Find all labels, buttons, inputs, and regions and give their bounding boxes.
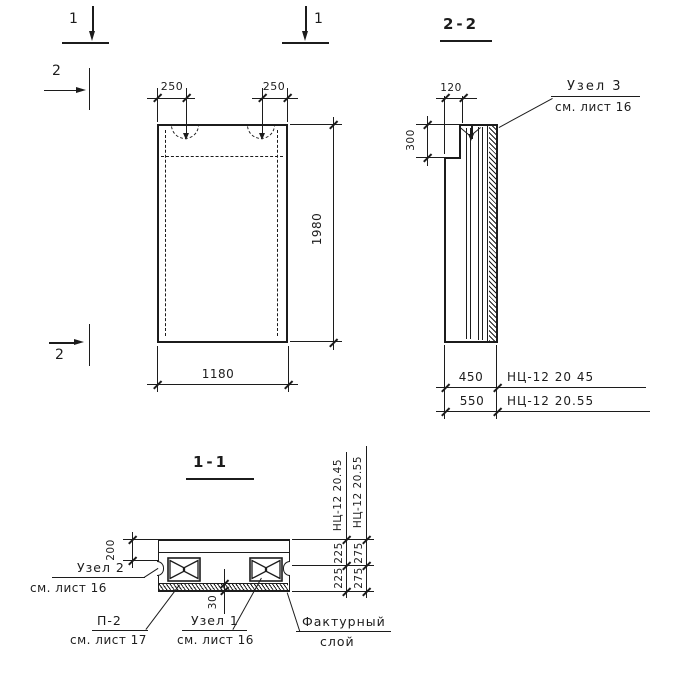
loop-arrow-icon: [183, 133, 189, 140]
callout-underline: [551, 96, 640, 97]
dimension-line: [333, 117, 334, 350]
channel-insert-icon: [249, 557, 283, 582]
dim-30: 30: [207, 591, 219, 613]
cut-label-2-top: 2: [52, 63, 61, 79]
flange-inner-line: [158, 552, 290, 553]
dim-275-top: 275: [353, 540, 365, 566]
callout-node3-ref: см. лист 16: [555, 100, 632, 114]
hidden-edge-line: [161, 156, 283, 157]
title-underline: [440, 40, 492, 42]
extension-line: [287, 88, 288, 122]
extension-line: [186, 88, 187, 124]
dimension-line: [436, 411, 650, 412]
cut-mark-line: [89, 68, 91, 110]
dim-225-bottom: 225: [333, 565, 345, 591]
extension-line: [416, 124, 459, 125]
callout-facing-line2: слой: [320, 634, 355, 649]
dim-250-right: 250: [259, 80, 289, 93]
dim-275-bottom: 275: [353, 565, 365, 591]
cut-label-2-bottom: 2: [55, 347, 64, 363]
callout-underline: [52, 577, 145, 578]
groove-notch: [283, 561, 290, 576]
leader-line: [286, 592, 300, 631]
cut-mark-line: [92, 6, 94, 33]
dimension-line: [346, 452, 347, 598]
title-underline: [186, 478, 254, 480]
callout-underline: [92, 630, 148, 631]
section-edge: [444, 157, 446, 343]
layer-line: [470, 128, 471, 339]
panel-mark-45: НЦ-12 20 45: [507, 370, 594, 384]
channel-insert-icon: [167, 557, 201, 582]
panel-mark-55: НЦ-12 20.55: [507, 394, 594, 408]
cut-arrow-down-icon: [302, 31, 308, 41]
dimension-line: [147, 384, 298, 385]
drawing-canvas: 1 1 2 2 250 250 1980 1180 2-2: [0, 0, 700, 700]
dim-450: 450: [451, 370, 491, 384]
section-edge: [158, 539, 160, 563]
callout-node2-title: Узел 2: [77, 560, 125, 575]
cut-label-1-right: 1: [314, 11, 323, 27]
extension-line: [157, 88, 158, 122]
section-edge: [289, 539, 291, 563]
extension-line: [262, 88, 263, 124]
cut-mark-line: [305, 6, 307, 33]
dimension-line: [436, 387, 646, 388]
layer-line: [478, 127, 479, 340]
section-edge: [444, 341, 498, 343]
cut-mark-line: [44, 90, 78, 92]
facing-layer-hatch: [489, 126, 497, 341]
dim-550: 550: [452, 394, 492, 408]
extension-line: [292, 591, 374, 592]
extension-line: [496, 345, 497, 419]
dim-120: 120: [438, 82, 464, 94]
section-edge: [158, 539, 290, 541]
callout-node1-title: Узел 1: [191, 613, 239, 628]
loop-arrow-icon: [468, 134, 474, 141]
callout-p2-ref: см. лист 17: [70, 633, 147, 647]
hidden-edge-line: [165, 130, 166, 336]
callout-underline: [296, 631, 391, 632]
leader-line: [499, 98, 553, 128]
extension-line: [416, 157, 444, 158]
section-2-2-title: 2-2: [443, 15, 479, 33]
callout-underline: [182, 630, 247, 631]
loop-arrow-icon: [259, 133, 265, 140]
cut-arrow-right-icon: [74, 339, 84, 345]
cut-arrow-down-icon: [89, 31, 95, 41]
extension-line: [444, 345, 445, 419]
panel-mark-55-vertical: НЦ-12 20.55: [352, 449, 364, 535]
dim-1980: 1980: [310, 212, 324, 246]
dim-250-left: 250: [157, 80, 187, 93]
section-1-1-title: 1-1: [193, 453, 229, 471]
cut-mark-line: [89, 324, 91, 366]
cut-mark-line: [282, 42, 329, 44]
cut-mark-line: [62, 42, 109, 44]
callout-p2-title: П-2: [97, 613, 122, 628]
cut-mark-line: [49, 342, 76, 344]
dimension-line: [366, 446, 367, 598]
callout-node1-ref: см. лист 16: [177, 633, 254, 647]
dim-1180: 1180: [196, 367, 240, 381]
dim-225-top: 225: [333, 540, 345, 566]
layer-line: [466, 128, 467, 339]
cut-label-1-left: 1: [69, 11, 78, 27]
section-step-edge: [444, 157, 460, 159]
dim-300: 300: [405, 125, 417, 155]
layer-line: [482, 127, 483, 340]
extension-line: [123, 539, 158, 540]
extension-line: [123, 560, 158, 561]
callout-facing-line1: Фактурный: [302, 614, 386, 629]
callout-node2-ref: см. лист 16: [30, 581, 107, 595]
extension-line: [444, 96, 445, 154]
callout-node3-title: Узел 3: [567, 79, 623, 94]
cut-arrow-right-icon: [76, 87, 86, 93]
hidden-edge-line: [277, 130, 278, 336]
panel-mark-45-vertical: НЦ-12 20.45: [332, 452, 344, 538]
